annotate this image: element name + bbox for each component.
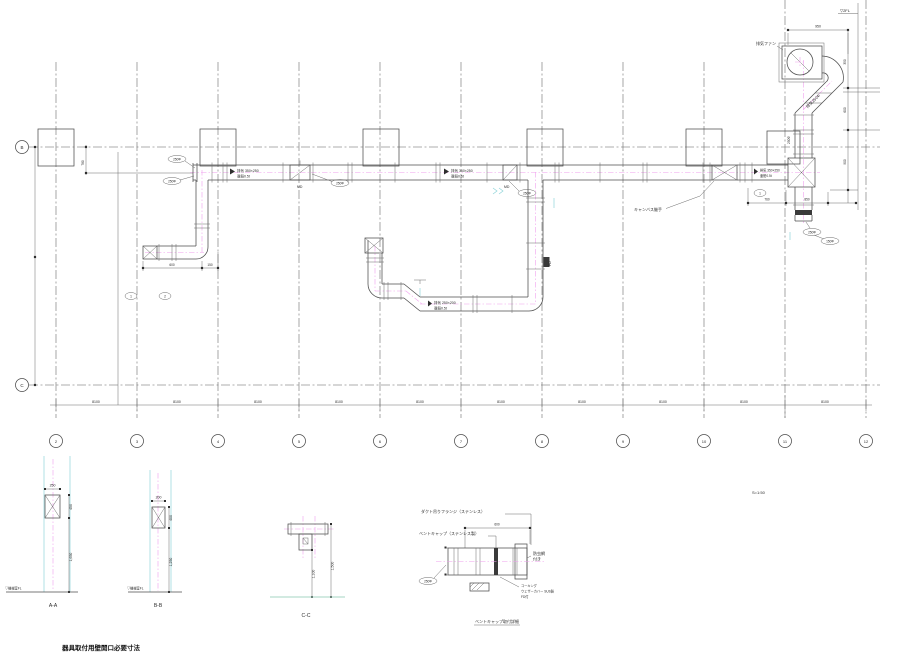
dim-offset: 780 — [81, 160, 85, 166]
bay-dim: 8100 — [659, 400, 667, 404]
vent-cap-detail: ダクト吊りフランジ（ステンレス） ベントキャップ（ステンレス製） 600 防虫網… — [419, 508, 555, 625]
small-callout: 1 — [759, 191, 761, 195]
bay-dim: 8100 — [821, 400, 829, 404]
section-a-label: A-A — [49, 603, 58, 609]
grid-label: 7 — [460, 439, 463, 444]
section-b-label: B-B — [154, 603, 163, 609]
duct-size-label: 排気 350×250 — [451, 168, 473, 173]
detail-dim: 600 — [494, 523, 500, 527]
small-callout: 1 — [130, 294, 132, 298]
grid-lines — [29, 0, 880, 418]
duct-gauge-label: 亜鉛0.5t — [237, 174, 250, 179]
drawing-caption: 器具取付用壁開口必要寸法 — [61, 643, 141, 652]
detail-callout: 250Φ — [424, 579, 432, 583]
dim-bl2: 150 — [207, 263, 213, 267]
canvas-connector-note: キャンバス継手 — [634, 206, 662, 212]
detail-note3: ウェザーカバー SUS製 — [521, 589, 555, 594]
duct-size-label: 排気 250×200 — [434, 300, 456, 305]
section-a-dim1: 450 — [69, 504, 73, 510]
riser-and-exhaust-fan: 排気250Φ 250Φ 排気ファン 950 350 600 900 ▽2FL — [747, 8, 880, 245]
grid-label: 3 — [136, 439, 139, 444]
section-c-dim2: 1,500 — [331, 562, 335, 571]
dim-br1: 760 — [764, 198, 770, 202]
row-label-b: B — [20, 145, 23, 150]
dim-r2: 600 — [843, 107, 847, 113]
detail-note3: コーキング — [521, 583, 538, 588]
section-a-a: 250 450 1,650 ▽機械室FL A-A — [5, 456, 78, 609]
duct-gauge-label: 亜鉛0.5t — [760, 173, 772, 178]
bay-dim: 8100 — [497, 400, 505, 404]
branch-callout: 250Φ — [173, 157, 181, 161]
grid-label: 8 — [541, 439, 544, 444]
bay-dim: 8100 — [740, 400, 748, 404]
section-c-label: C-C — [302, 613, 311, 619]
volume-damper-1 — [290, 161, 310, 181]
section-b-b: 200 400 1,250 ▽機械室FL B-B — [127, 470, 182, 609]
dim-top: 950 — [815, 25, 821, 29]
grid-label: 9 — [622, 439, 625, 444]
dim-r1: 350 — [843, 59, 847, 65]
grid-label: 6 — [379, 439, 382, 444]
grid-label: 5 — [298, 439, 301, 444]
small-callout: 2 — [164, 294, 166, 298]
riser-callout: 150Φ — [826, 239, 834, 243]
section-c-dim1: 1,100 — [312, 570, 316, 579]
dim-bl1: 600 — [169, 263, 175, 267]
riser-callout: 250Φ — [808, 230, 816, 234]
detail-annotation-1: ダクト吊りフランジ（ステンレス） — [421, 508, 485, 514]
grid-bubbles: B C 8100 8100 8100 8100 8100 8100 8100 8… — [16, 141, 873, 448]
duct-size-label: 排気 350×250 — [760, 168, 780, 173]
duct-callout: 250Φ — [336, 181, 344, 185]
scale-note: S=1:50 — [752, 490, 766, 495]
detail-title: ベントキャップ取付詳細 — [475, 618, 519, 624]
fd-label: FD — [548, 261, 552, 266]
riser-size: 250Φ — [787, 136, 791, 144]
grid-label: 4 — [217, 439, 220, 444]
main-exhaust-duct-run: 排気 350×250 亜鉛0.5t 排気 350×250 亜鉛0.5t 排気 3… — [190, 161, 820, 213]
grid-label: 12 — [864, 439, 869, 444]
grid-label: 11 — [783, 439, 788, 444]
duct-gauge-label: 亜鉛0.5t — [434, 306, 447, 311]
grid-label: 2 — [55, 439, 58, 444]
volume-damper-2 — [503, 165, 517, 180]
structural-columns — [38, 129, 800, 166]
detail-note3: FD付 — [521, 594, 529, 599]
branch-callout: 250Φ — [168, 179, 176, 183]
dim-r3: 900 — [843, 159, 847, 165]
notes: S=1:50 器具取付用壁開口必要寸法 — [61, 490, 766, 652]
detail-right-note: 防虫網 — [533, 550, 545, 556]
section-a-top-dim: 250 — [50, 484, 56, 488]
dim-br2: 850 — [804, 198, 810, 202]
fan-label: 排気ファン — [756, 40, 776, 46]
section-a-dim2: 1,650 — [69, 553, 73, 562]
detail-right-note: 付き — [533, 556, 541, 562]
section-b-top-dim: 200 — [156, 496, 162, 500]
md-label: MD — [504, 185, 510, 189]
duct-plan-drawing: B C 8100 8100 8100 8100 8100 8100 8100 8… — [0, 0, 900, 666]
duct-callout: 250Φ — [523, 191, 531, 195]
fl-level-label: ▽機械室FL — [5, 586, 22, 591]
bay-dim: 8100 — [254, 400, 262, 404]
bay-dim: 8100 — [416, 400, 424, 404]
level-mark: ▽2FL — [840, 8, 851, 13]
duct-size-label: 排気 350×250 — [237, 168, 259, 173]
section-c-c: 1,100 1,500 C-C — [270, 516, 345, 619]
row-label-c: C — [20, 383, 24, 388]
md-label: MD — [297, 185, 303, 189]
section-b-dim2: 1,250 — [169, 558, 173, 567]
exhaust-fan — [779, 43, 824, 82]
left-branch-duct: 250Φ 250Φ 600 150 1 2 — [125, 156, 219, 300]
section-b-dim1: 400 — [169, 515, 173, 521]
bay-dim: 8100 — [173, 400, 181, 404]
fl-level-label: ▽機械室FL — [127, 586, 144, 591]
bay-dim: 8100 — [335, 400, 343, 404]
detail-annotation-2: ベントキャップ（ステンレス製） — [419, 530, 479, 536]
grid-label: 10 — [702, 439, 707, 444]
duct-gauge-label: 亜鉛0.5t — [451, 174, 464, 179]
bay-dim: 8100 — [578, 400, 586, 404]
drawing-canvas: B C 8100 8100 8100 8100 8100 8100 8100 8… — [0, 0, 900, 666]
bay-dim: 8100 — [92, 400, 100, 404]
